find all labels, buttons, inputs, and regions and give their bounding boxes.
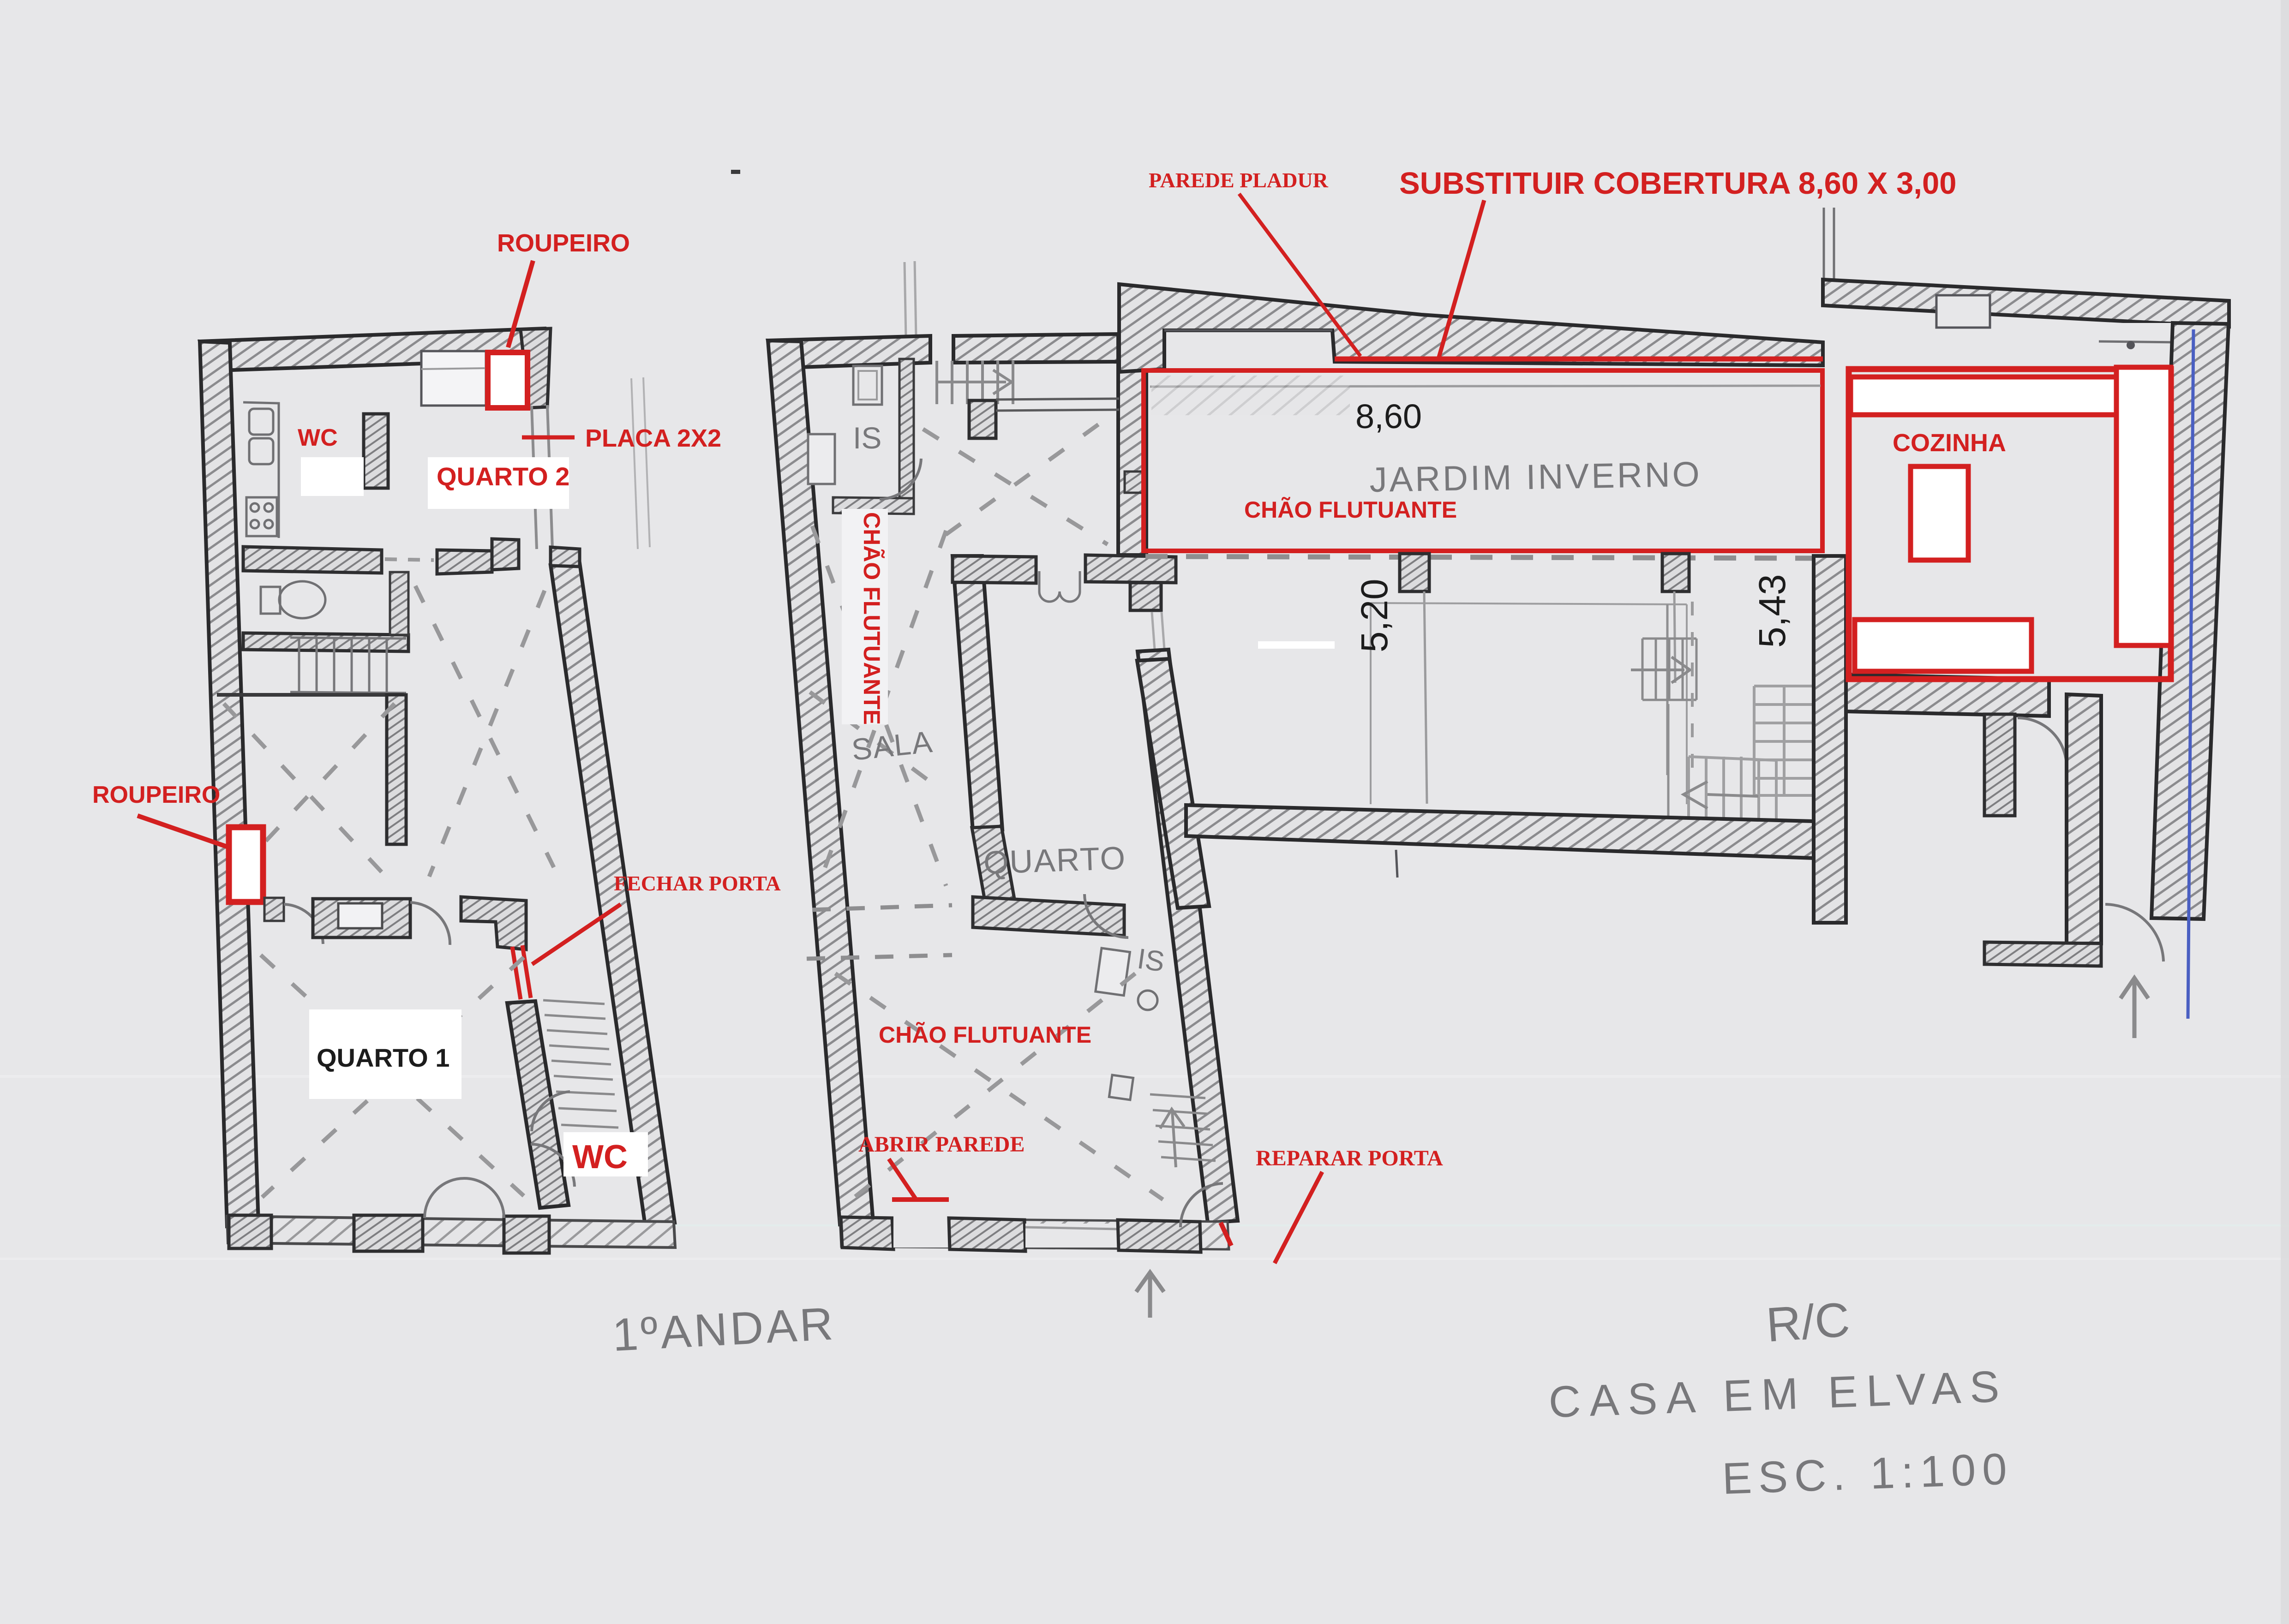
svg-text:JARDIM INVERNO: JARDIM INVERNO — [1369, 454, 1702, 500]
svg-text:WC: WC — [572, 1139, 628, 1176]
svg-text:FECHAR PORTA: FECHAR PORTA — [614, 872, 781, 895]
svg-text:5,20: 5,20 — [1354, 579, 1396, 652]
svg-text:CHÃO FLUTUANTE: CHÃO FLUTUANTE — [1244, 497, 1457, 523]
svg-text:WC: WC — [298, 424, 338, 451]
svg-text:8,60: 8,60 — [1355, 397, 1422, 436]
svg-text:ROUPEIRO: ROUPEIRO — [497, 229, 630, 257]
svg-text:PAREDE PLADUR: PAREDE PLADUR — [1149, 168, 1329, 192]
svg-text:5,43: 5,43 — [1751, 574, 1793, 648]
svg-text:PLACA 2X2: PLACA 2X2 — [585, 424, 721, 452]
svg-text:CHÃO FLUTUANTE: CHÃO FLUTUANTE — [859, 512, 885, 725]
svg-text:QUARTO 1: QUARTO 1 — [317, 1043, 449, 1072]
svg-text:IS: IS — [1135, 943, 1167, 978]
svg-text:R/C: R/C — [1764, 1293, 1852, 1352]
svg-text:COZINHA: COZINHA — [1893, 429, 2006, 457]
svg-text:QUARTO 2: QUARTO 2 — [437, 462, 569, 491]
svg-text:REPARAR PORTA: REPARAR PORTA — [1256, 1146, 1443, 1170]
svg-text:ESC. 1:100: ESC. 1:100 — [1721, 1444, 2014, 1504]
svg-text:QUARTO: QUARTO — [983, 840, 1127, 881]
svg-text:ABRIR PAREDE: ABRIR PAREDE — [858, 1132, 1025, 1157]
svg-text:SUBSTITUIR COBERTURA 8,60 X 3,: SUBSTITUIR COBERTURA 8,60 X 3,00 — [1399, 166, 1957, 201]
svg-text:IS: IS — [853, 421, 881, 455]
svg-text:CHÃO FLUTUANTE: CHÃO FLUTUANTE — [879, 1022, 1091, 1048]
svg-text:ROUPEIRO: ROUPEIRO — [92, 782, 220, 808]
